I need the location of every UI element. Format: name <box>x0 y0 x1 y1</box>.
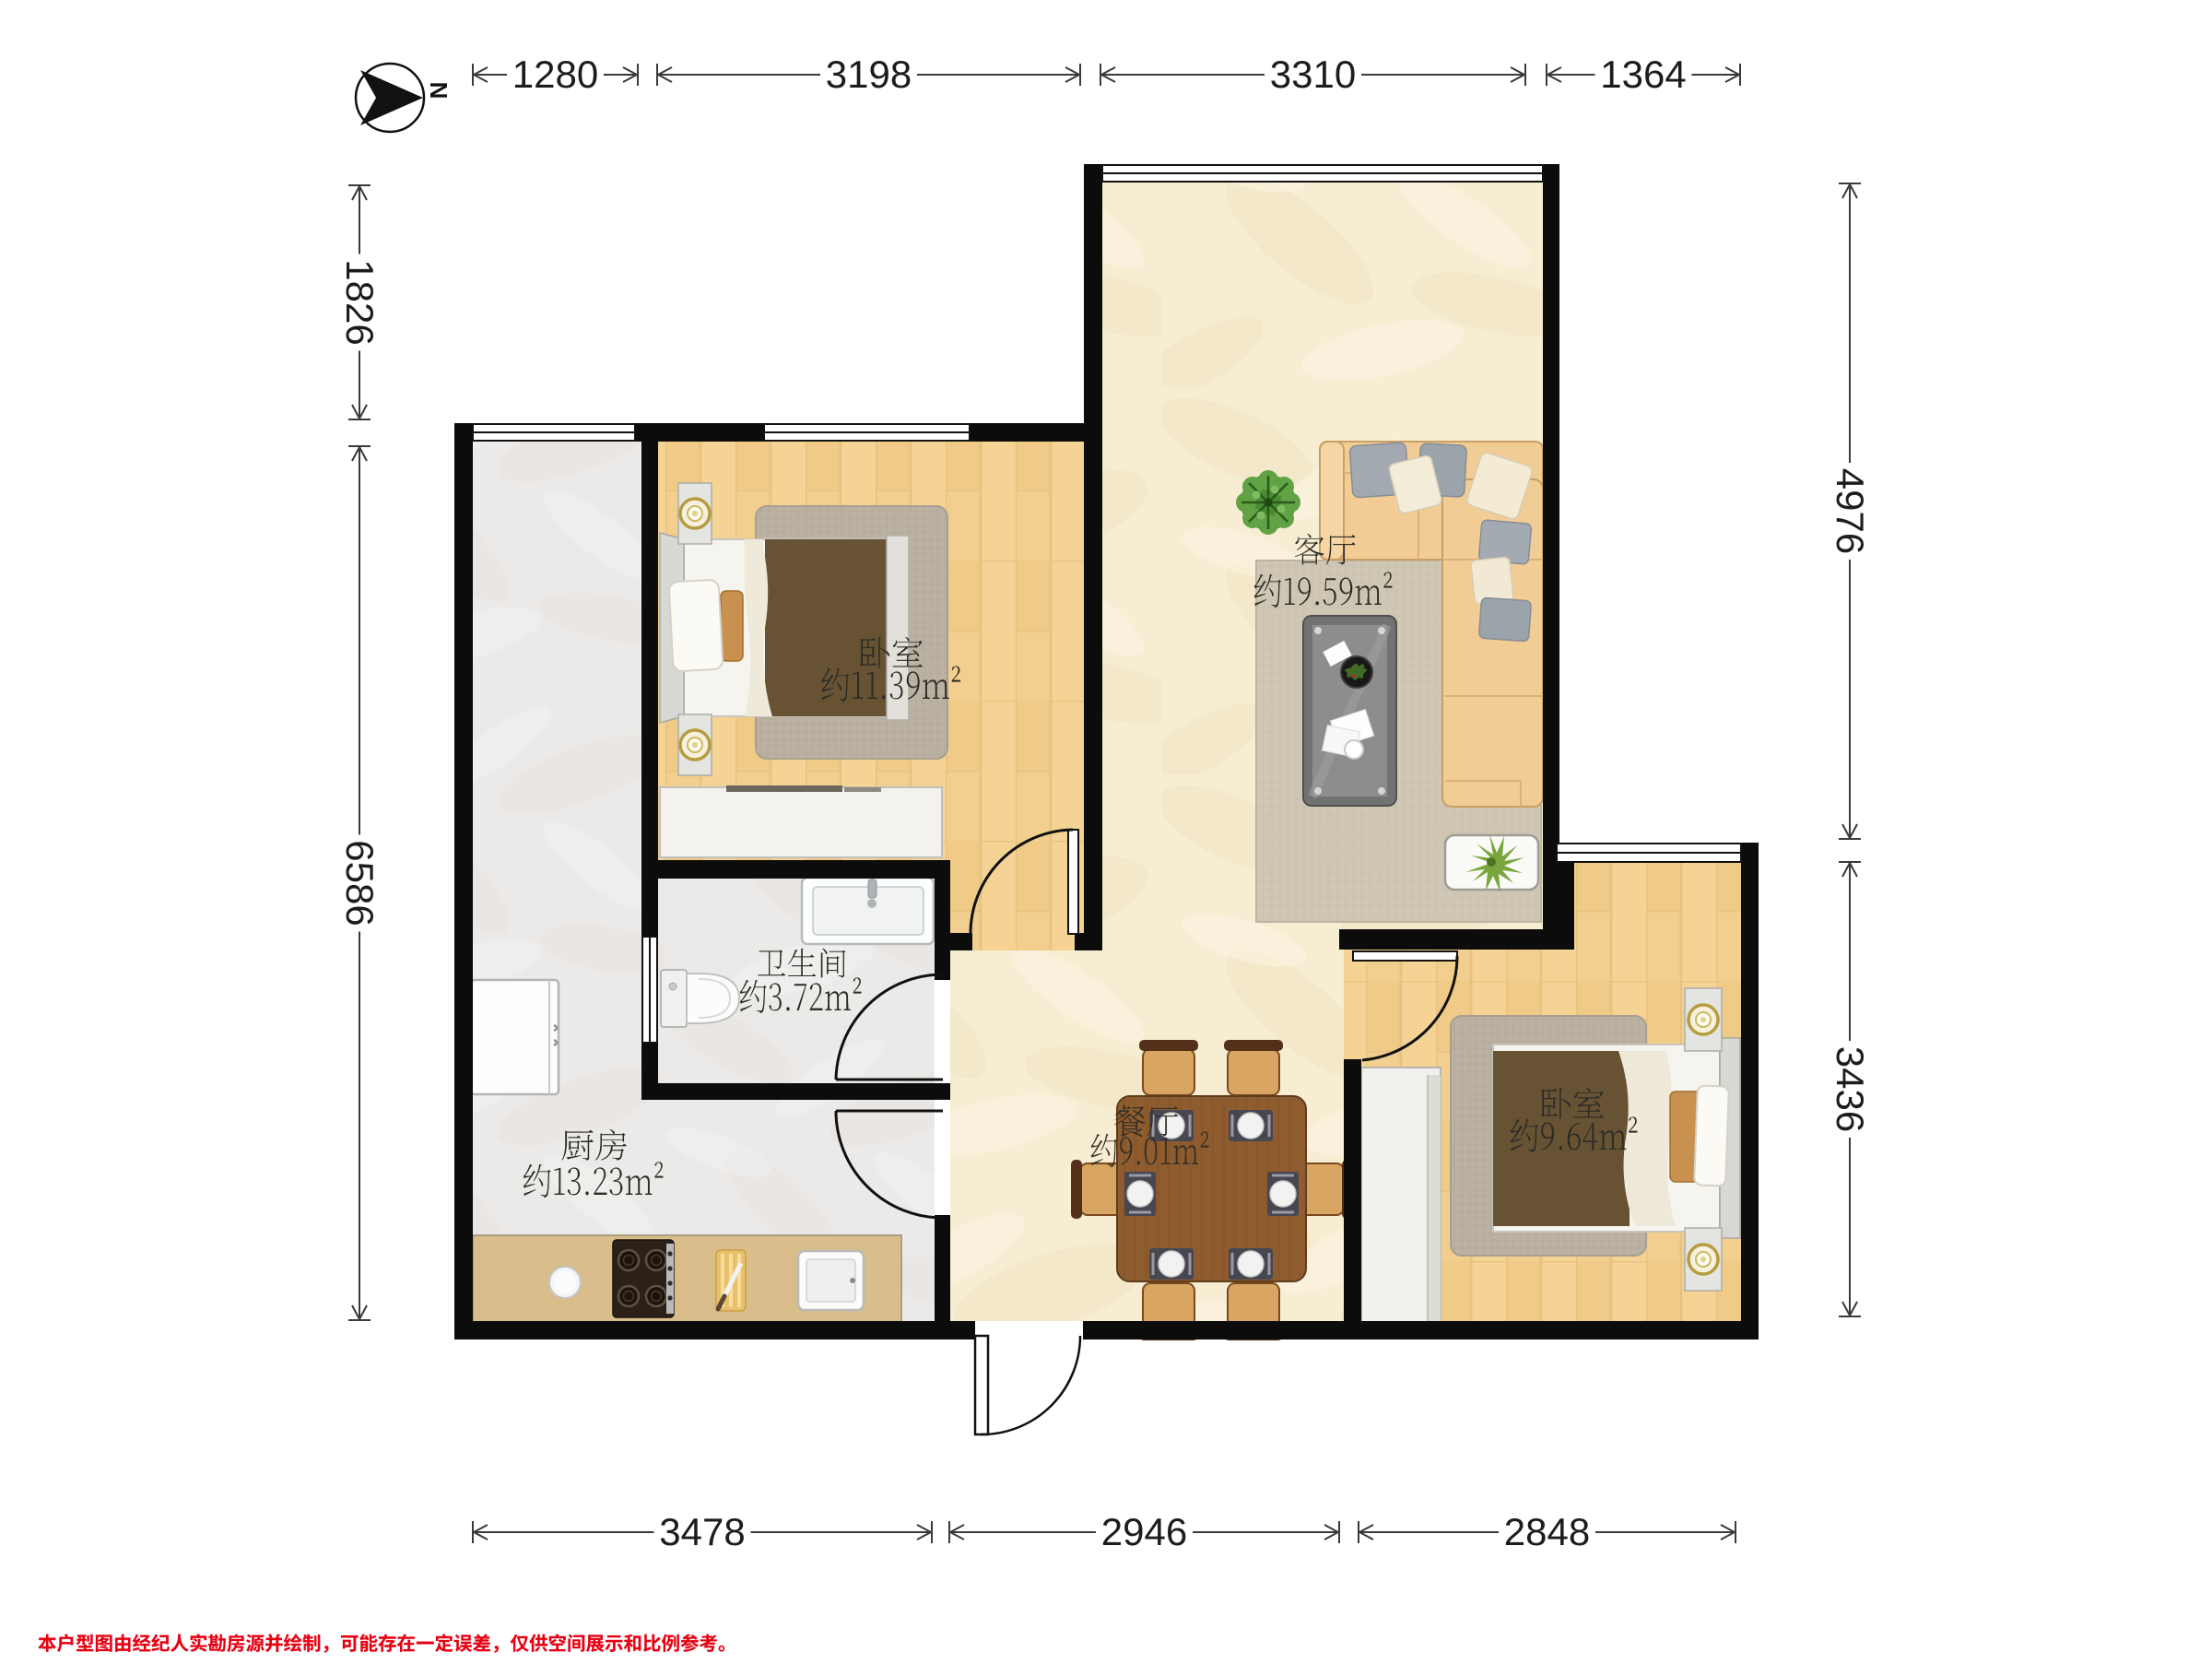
svg-text:1280: 1280 <box>512 53 598 96</box>
svg-text:2848: 2848 <box>1504 1510 1590 1553</box>
svg-text:2946: 2946 <box>1101 1510 1187 1553</box>
svg-text:4976: 4976 <box>1829 468 1872 554</box>
svg-text:1826: 1826 <box>338 259 382 345</box>
svg-text:3478: 3478 <box>659 1510 745 1553</box>
svg-text:3310: 3310 <box>1270 53 1356 96</box>
svg-text:1364: 1364 <box>1600 53 1686 96</box>
svg-text:N: N <box>425 82 453 100</box>
svg-text:3198: 3198 <box>826 53 912 96</box>
svg-text:6586: 6586 <box>338 840 382 926</box>
svg-text:3436: 3436 <box>1829 1046 1872 1132</box>
